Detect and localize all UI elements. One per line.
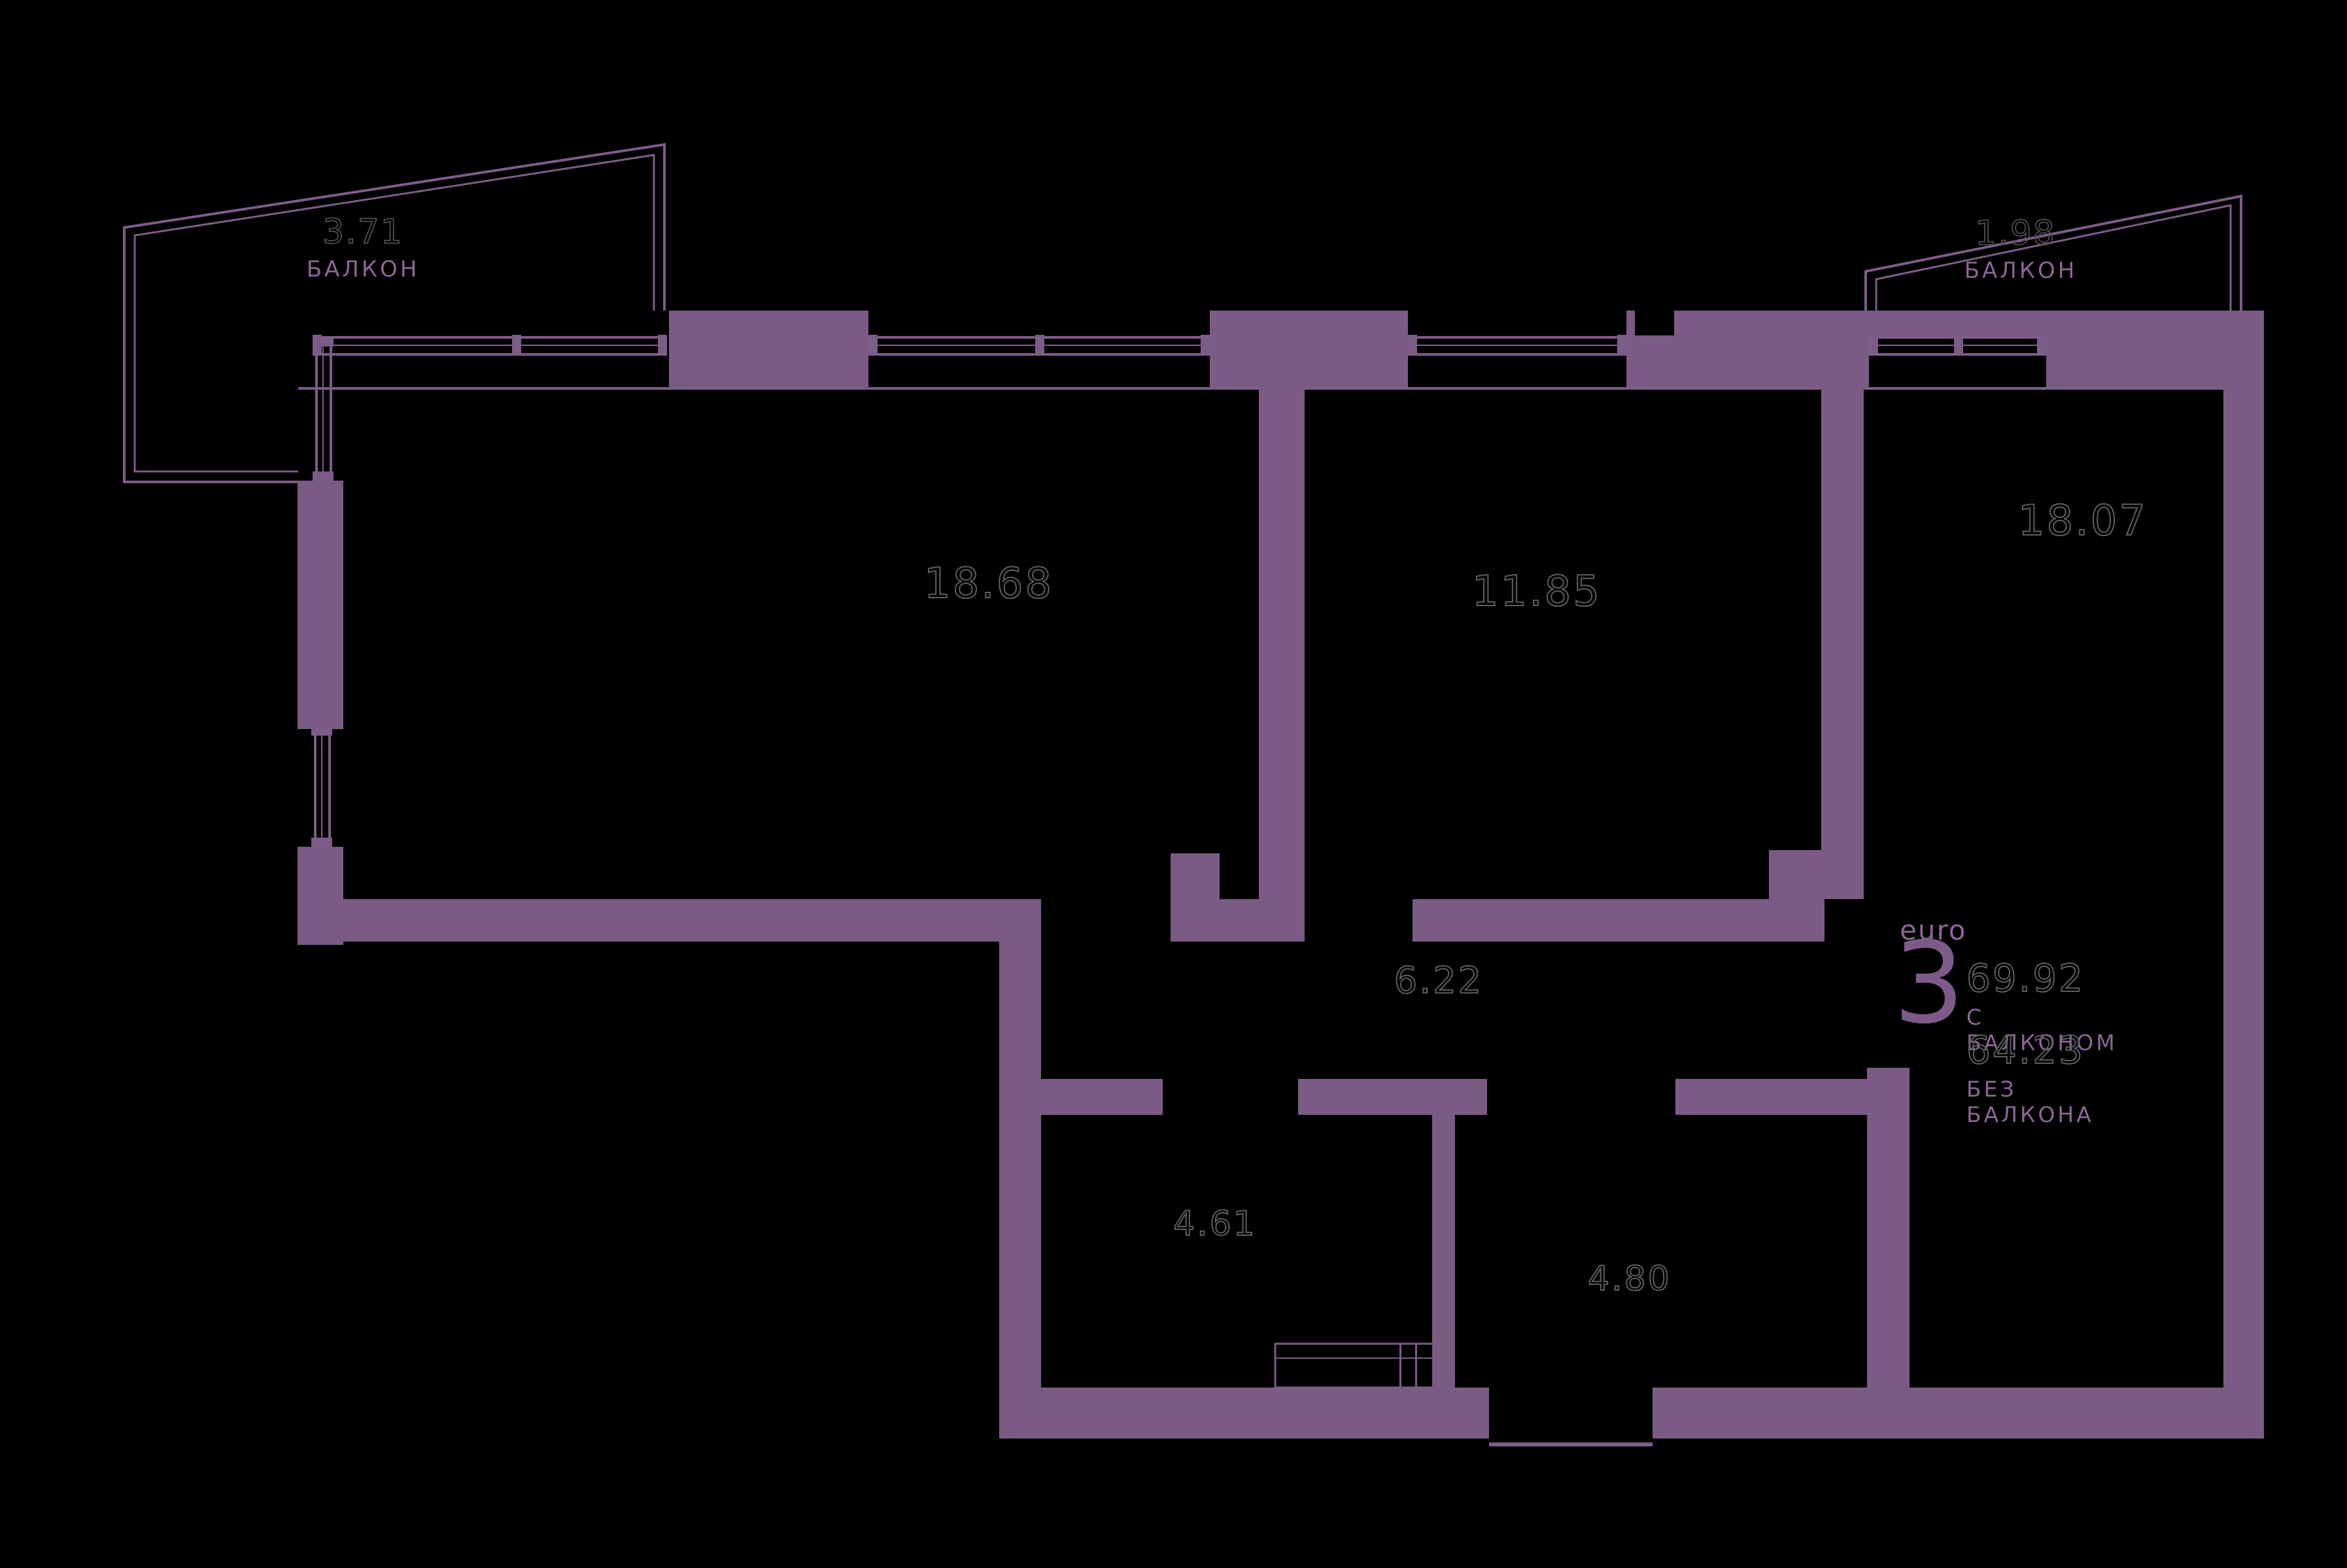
wall-top-block-1 xyxy=(669,311,868,389)
room-area-label-bedroom1: 11.85 xyxy=(1472,568,1602,616)
wall-bathroom-entry-divider xyxy=(1432,1115,1455,1388)
wall-bottom-right xyxy=(1653,1388,2264,1439)
window-top-c xyxy=(1408,335,1626,356)
wall-bottom-left xyxy=(999,1388,1489,1439)
room-area-label-bathroom: 4.61 xyxy=(1173,1204,1257,1244)
wall-outer-right xyxy=(2223,311,2264,1439)
window-left-lower xyxy=(311,726,332,847)
wall-outer-left-upper xyxy=(298,481,343,729)
wall-living-bedroom1 xyxy=(1259,389,1305,899)
wall-top-notch xyxy=(1635,311,1674,335)
balcony-left-area-label: 3.71 xyxy=(322,213,403,252)
window-top-b xyxy=(868,335,1210,356)
wall-hall-band-c xyxy=(1413,899,1824,942)
wall-bath-band-right xyxy=(1675,1079,1869,1115)
wall-top-block-2 xyxy=(1210,311,1408,389)
window-top-d xyxy=(1869,335,2046,356)
window-left-corner xyxy=(313,337,334,481)
wall-bath-band-left xyxy=(1041,1079,1163,1115)
door-jamb-pier-living xyxy=(1171,853,1220,899)
wall-hall-band-b xyxy=(1171,899,1305,942)
summary-area-with-balcony: 69.92 xyxy=(1966,956,2085,1000)
wall-bedroom1-bedroom2 xyxy=(1821,389,1864,899)
wall-hall-band-a xyxy=(298,899,1041,942)
balcony-left-outline xyxy=(124,145,664,482)
room-area-label-hallway: 6.22 xyxy=(1394,960,1484,1002)
summary-rooms-count: 3 xyxy=(1893,927,1964,1040)
wall-top-block-4 xyxy=(2046,311,2223,389)
room-area-label-entry: 4.80 xyxy=(1588,1259,1671,1299)
balcony-left-name-label: БАЛКОН xyxy=(307,256,420,282)
cabinet-icon xyxy=(1275,1344,1439,1388)
room-area-label-bedroom2: 18.07 xyxy=(2018,497,2148,545)
room-area-label-living: 18.68 xyxy=(924,560,1054,608)
summary-without-balcony-label: БЕЗ БАЛКОНА xyxy=(1966,1076,2094,1127)
balcony-right-name-label: БАЛКОН xyxy=(1964,258,2078,284)
entrance-threshold-line xyxy=(1489,1442,1653,1446)
balcony-right-area-label: 1.98 xyxy=(1975,214,2056,253)
wall-bedroom1-pier xyxy=(1769,850,1821,899)
balcony-right-ledge xyxy=(1869,311,2046,337)
window-top-a xyxy=(313,335,667,356)
summary-area-without-balcony: 64.23 xyxy=(1966,1028,2085,1072)
wall-entry-right xyxy=(1867,1068,1910,1439)
floor-plan: 3.71 БАЛКОН 1.98 БАЛКОН 18.68 11.85 18.0… xyxy=(0,0,2347,1568)
wall-outer-lower-left xyxy=(999,942,1041,1439)
wall-bath-band-mid xyxy=(1298,1079,1487,1115)
